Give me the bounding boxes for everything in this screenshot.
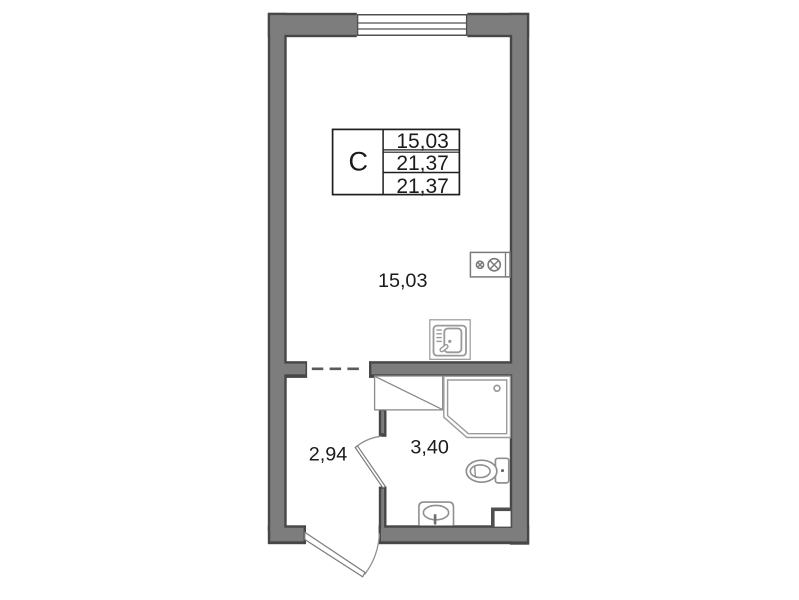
svg-text:2,94: 2,94 bbox=[309, 444, 348, 466]
svg-text:C: C bbox=[349, 147, 369, 177]
svg-text:15,03: 15,03 bbox=[378, 270, 428, 292]
svg-text:3,40: 3,40 bbox=[410, 437, 449, 459]
svg-text:15,03: 15,03 bbox=[396, 130, 449, 153]
svg-text:21,37: 21,37 bbox=[396, 152, 449, 175]
svg-text:21,37: 21,37 bbox=[396, 175, 449, 198]
